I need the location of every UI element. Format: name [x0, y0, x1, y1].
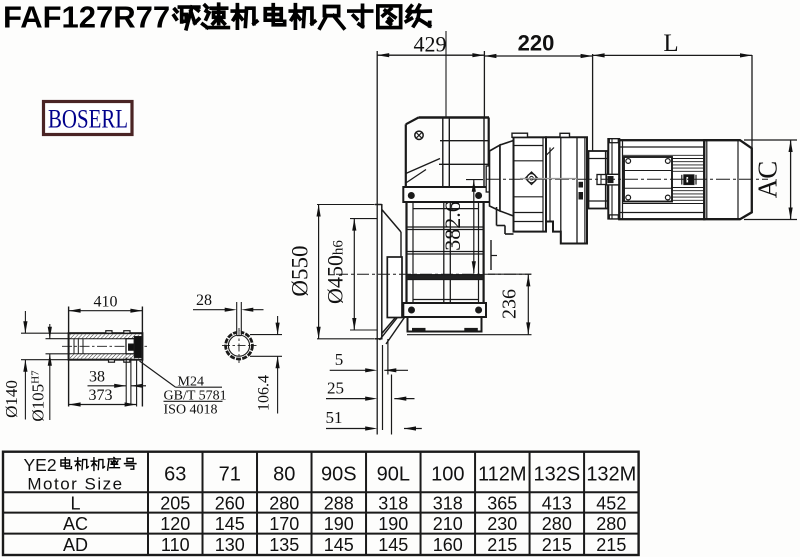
- svg-text:382.6: 382.6: [440, 201, 465, 251]
- svg-text:318: 318: [433, 494, 463, 514]
- svg-text:106.4: 106.4: [256, 375, 273, 411]
- svg-text:318: 318: [378, 494, 408, 514]
- svg-text:230: 230: [487, 514, 517, 534]
- svg-text:M24: M24: [178, 375, 204, 390]
- svg-text:25: 25: [327, 379, 344, 398]
- svg-text:236: 236: [499, 289, 521, 319]
- svg-text:L: L: [663, 30, 678, 57]
- svg-text:FAF127R77: FAF127R77: [3, 0, 170, 35]
- svg-text:145: 145: [378, 535, 408, 555]
- svg-text:110: 110: [161, 535, 190, 555]
- svg-text:38: 38: [89, 369, 105, 386]
- svg-text:190: 190: [324, 514, 354, 534]
- svg-text:220: 220: [518, 31, 555, 56]
- svg-text:160: 160: [433, 535, 463, 555]
- svg-text:ISO 4018: ISO 4018: [164, 403, 218, 418]
- svg-text:280: 280: [542, 514, 572, 534]
- svg-text:80: 80: [273, 464, 295, 486]
- svg-text:90S: 90S: [321, 464, 357, 486]
- svg-text:215: 215: [487, 535, 517, 555]
- svg-text:215: 215: [596, 535, 626, 555]
- svg-text:BOSERL: BOSERL: [48, 105, 128, 134]
- svg-text:Motor Size: Motor Size: [27, 475, 123, 494]
- svg-text:112M: 112M: [478, 464, 527, 486]
- svg-text:288: 288: [324, 494, 354, 514]
- svg-text:452: 452: [596, 494, 626, 514]
- svg-text:5: 5: [335, 350, 344, 369]
- svg-text:28: 28: [196, 292, 212, 309]
- svg-text:429: 429: [414, 32, 447, 57]
- svg-text:90L: 90L: [377, 464, 410, 486]
- svg-text:210: 210: [433, 514, 463, 534]
- svg-text:100: 100: [431, 464, 464, 486]
- svg-text:AC: AC: [63, 514, 88, 534]
- svg-text:215: 215: [542, 535, 572, 555]
- svg-text:132S: 132S: [533, 464, 580, 486]
- svg-text:63: 63: [164, 464, 186, 486]
- svg-text:120: 120: [160, 514, 190, 534]
- svg-text:413: 413: [542, 494, 572, 514]
- svg-text:51: 51: [326, 408, 343, 427]
- svg-text:280: 280: [596, 514, 626, 534]
- svg-text:280: 280: [269, 494, 299, 514]
- svg-text:373: 373: [89, 387, 113, 404]
- svg-text:AD: AD: [63, 535, 88, 555]
- svg-text:410: 410: [94, 294, 118, 311]
- svg-text:132M: 132M: [586, 464, 636, 486]
- svg-text:205: 205: [160, 494, 190, 514]
- svg-text:L: L: [70, 494, 80, 514]
- svg-text:145: 145: [324, 535, 354, 555]
- svg-text:YE2: YE2: [24, 455, 57, 475]
- svg-text:190: 190: [378, 514, 408, 534]
- svg-text:Ø550: Ø550: [288, 245, 313, 296]
- svg-text:135: 135: [269, 535, 299, 555]
- svg-text:365: 365: [487, 494, 517, 514]
- svg-text:170: 170: [269, 514, 299, 534]
- svg-text:71: 71: [219, 464, 241, 486]
- svg-text:145: 145: [215, 514, 245, 534]
- svg-text:260: 260: [215, 494, 245, 514]
- svg-text:Ø140: Ø140: [2, 380, 21, 418]
- svg-text:130: 130: [215, 535, 245, 555]
